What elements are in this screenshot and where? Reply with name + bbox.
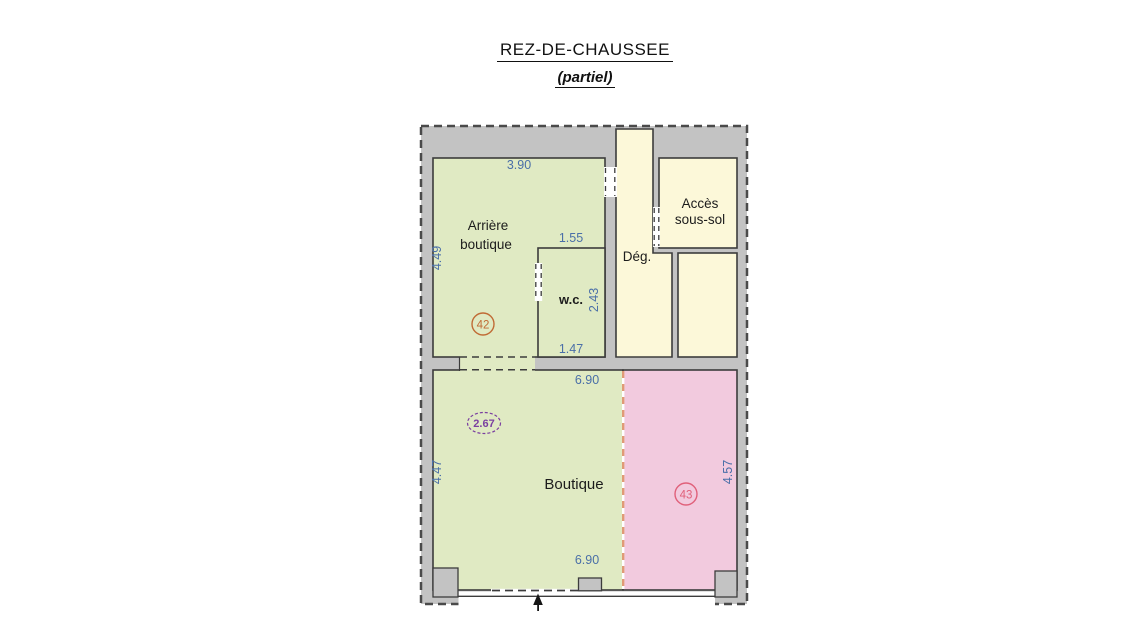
floor-plan-drawing: 3.90 4.49 1.55 2.43 1.47 6.90 6.90 4.47 … xyxy=(0,0,1130,636)
dim-boutique-width-bottom: 6.90 xyxy=(575,553,599,567)
label-arriere-line2: boutique xyxy=(460,237,512,252)
label-boutique: Boutique xyxy=(544,476,603,493)
dim-arriere-height-left: 4.49 xyxy=(430,246,444,270)
opening-arriere-to-boutique xyxy=(460,356,535,371)
dim-wc-width-bottom: 1.47 xyxy=(559,342,583,356)
label-arriere-line1: Arrière xyxy=(468,218,509,233)
label-degagement: Dég. xyxy=(623,249,652,264)
label-acces-line2: sous-sol xyxy=(675,212,725,227)
wall-pier-bottom-left xyxy=(433,568,458,597)
storefront-white-band xyxy=(459,592,716,606)
room-lot43 xyxy=(623,370,737,590)
storefront-pillar xyxy=(579,578,602,591)
dim-lot43-height-right: 4.57 xyxy=(721,460,735,484)
label-wc: w.c. xyxy=(558,292,583,307)
label-acces-line1: Accès xyxy=(682,196,719,211)
ceiling-height-value: 2.67 xyxy=(473,418,494,430)
dim-boutique-height-left: 4.47 xyxy=(430,460,444,484)
lot42-marker-number: 42 xyxy=(477,320,490,332)
dim-arriere-width-top: 3.90 xyxy=(507,158,531,172)
floor-plan-page: REZ-DE-CHAUSSEE (partiel) xyxy=(0,0,1130,636)
room-unlabeled-storage xyxy=(678,253,737,357)
dim-wc-height-right: 2.43 xyxy=(587,288,601,312)
dim-boutique-width-top: 6.90 xyxy=(575,373,599,387)
entrance-arrow-stem xyxy=(537,604,539,611)
lot43-marker-number: 43 xyxy=(680,490,693,502)
wall-pier-bottom-right xyxy=(715,571,737,597)
dim-wc-width-top: 1.55 xyxy=(559,231,583,245)
